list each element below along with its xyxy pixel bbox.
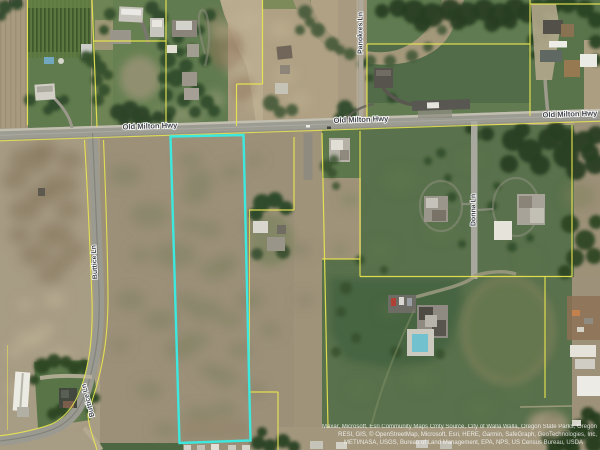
svg-text:Maxar, Microsoft, Esri Communi: Maxar, Microsoft, Esri Community Maps Cm… xyxy=(322,424,597,430)
svg-text:Panokres Ln: Panokres Ln xyxy=(358,12,365,54)
svg-text:METI/NASA, USGS, Bureau of Lan: METI/NASA, USGS, Bureau of Land Manageme… xyxy=(344,440,583,446)
svg-text:RESI, GIS, © OpenStreetMap, Mi: RESI, GIS, © OpenStreetMap, Microsoft, E… xyxy=(338,431,597,438)
svg-text:Donna Ln: Donna Ln xyxy=(471,194,478,226)
